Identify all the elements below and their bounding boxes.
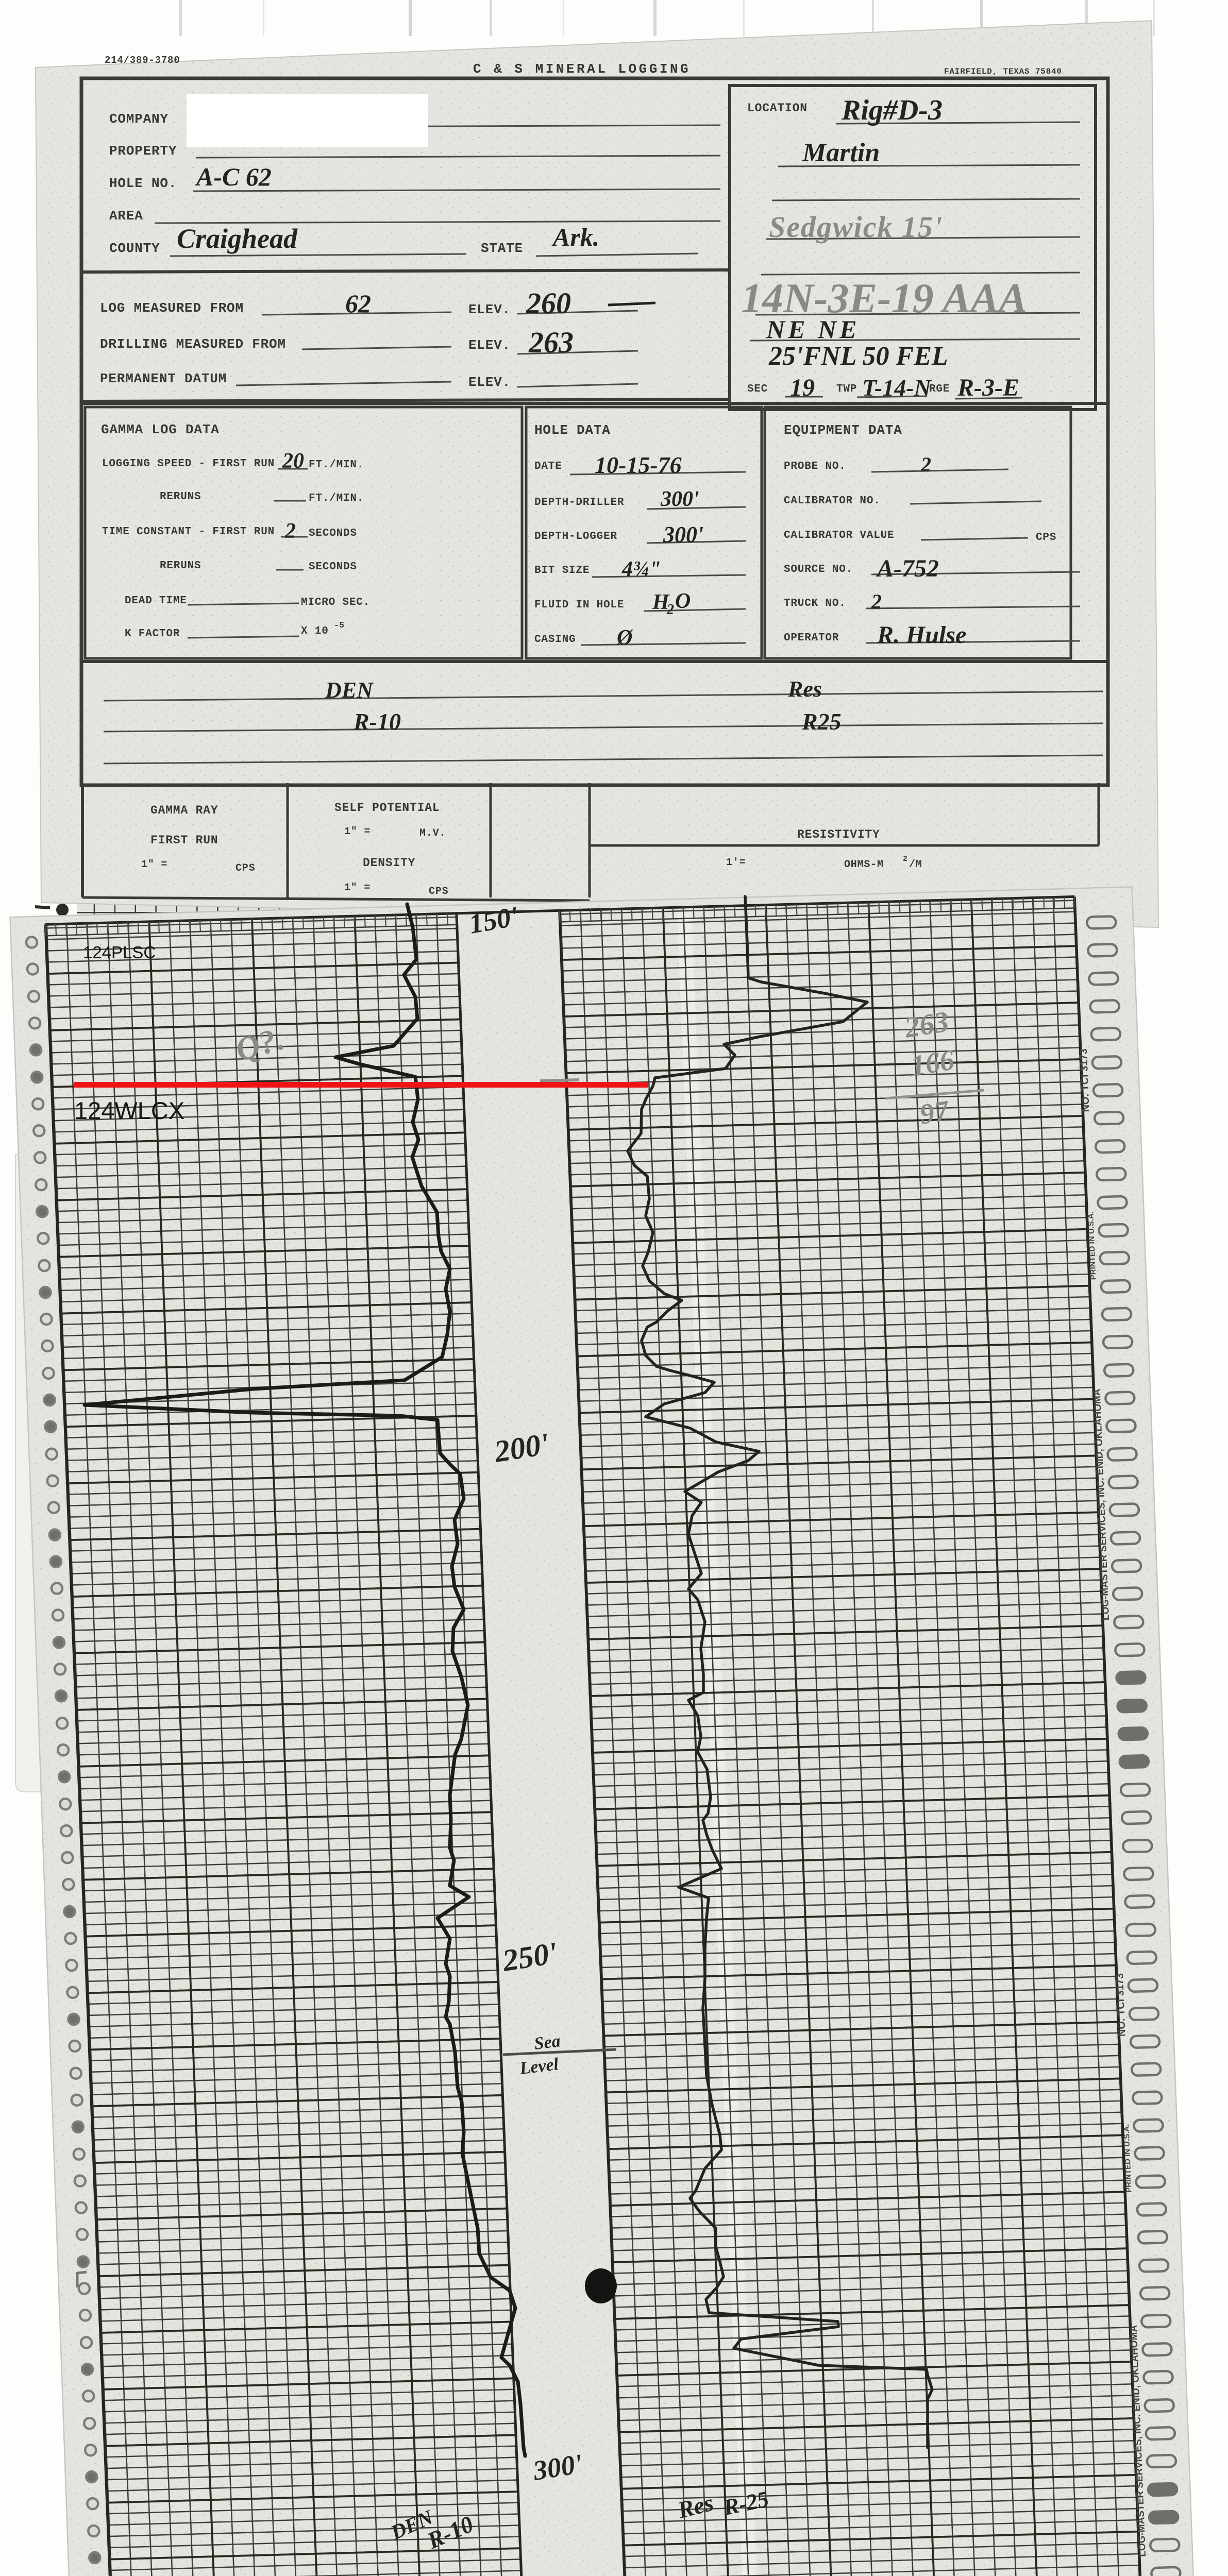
svg-text:2: 2: [920, 453, 931, 476]
svg-text:LOGGING SPEED - FIRST RUN: LOGGING SPEED - FIRST RUN: [102, 458, 275, 470]
svg-text:CPS: CPS: [1036, 532, 1056, 544]
svg-text:M.V.: M.V.: [419, 827, 446, 839]
svg-text:300': 300': [663, 522, 703, 547]
svg-text:1" =: 1" =: [141, 859, 167, 871]
svg-text:PROBE NO.: PROBE NO.: [784, 461, 846, 472]
svg-text:2: 2: [666, 602, 674, 618]
svg-text:FT./MIN.: FT./MIN.: [309, 493, 364, 504]
svg-text:ELEV.: ELEV.: [468, 375, 511, 390]
svg-text:FIRST RUN: FIRST RUN: [150, 834, 218, 847]
svg-text:C & S MINERAL LOGGING: C & S MINERAL LOGGING: [473, 61, 691, 77]
svg-text:RGE: RGE: [929, 383, 950, 395]
svg-text:CALIBRATOR VALUE: CALIBRATOR VALUE: [784, 530, 894, 541]
svg-text:2: 2: [284, 519, 296, 543]
svg-text:DRILLING MEASURED FROM: DRILLING MEASURED FROM: [100, 336, 286, 352]
svg-text:62: 62: [345, 289, 371, 318]
svg-text:EQUIPMENT DATA: EQUIPMENT DATA: [784, 422, 902, 438]
svg-text:STATE: STATE: [481, 241, 523, 256]
svg-text:A-752: A-752: [876, 555, 939, 582]
svg-text:CALIBRATOR NO.: CALIBRATOR NO.: [784, 495, 881, 507]
svg-text:263: 263: [528, 326, 574, 359]
svg-text:DEN: DEN: [325, 677, 374, 703]
svg-text:CASING: CASING: [534, 634, 576, 646]
svg-text:1'=: 1'=: [726, 857, 746, 869]
svg-text:DENSITY: DENSITY: [363, 856, 415, 870]
svg-text:260: 260: [526, 286, 571, 320]
svg-text:GAMMA RAY: GAMMA RAY: [150, 804, 218, 817]
svg-text:TWP: TWP: [836, 383, 857, 395]
svg-text:OPERATOR: OPERATOR: [784, 632, 839, 644]
svg-text:TRUCK NO.: TRUCK NO.: [784, 598, 846, 609]
svg-text:25'FNL 50 FEL: 25'FNL 50 FEL: [768, 342, 948, 371]
svg-text:DEAD TIME: DEAD TIME: [125, 595, 187, 607]
svg-text:OHMS-M: OHMS-M: [844, 859, 884, 871]
svg-text:RESISTIVITY: RESISTIVITY: [797, 828, 880, 841]
svg-text:COMPANY: COMPANY: [109, 111, 169, 127]
svg-text:Craighead: Craighead: [177, 223, 298, 254]
svg-text:263: 263: [902, 1005, 951, 1044]
svg-text:R25: R25: [801, 708, 842, 735]
svg-text:Ark.: Ark.: [551, 223, 599, 251]
svg-text:K FACTOR: K FACTOR: [125, 628, 180, 640]
svg-text:Sedgwick 15': Sedgwick 15': [769, 210, 943, 244]
svg-text:FT./MIN.: FT./MIN.: [309, 459, 364, 471]
svg-text:1" =: 1" =: [344, 826, 371, 838]
svg-text:TIME CONSTANT - FIRST RUN: TIME CONSTANT - FIRST RUN: [102, 526, 275, 538]
svg-text:RERUNS: RERUNS: [160, 560, 201, 572]
svg-text:Rig#D-3: Rig#D-3: [841, 94, 943, 126]
svg-text:CPS: CPS: [429, 886, 448, 897]
svg-text:4¾": 4¾": [621, 557, 661, 581]
svg-text:SOURCE NO.: SOURCE NO.: [784, 564, 853, 575]
svg-text:Martin: Martin: [802, 138, 880, 167]
svg-text:CPS: CPS: [235, 862, 255, 874]
svg-text:FLUID IN HOLE: FLUID IN HOLE: [534, 599, 624, 611]
svg-text:SECONDS: SECONDS: [309, 528, 357, 539]
svg-text:X 10: X 10: [301, 625, 329, 637]
svg-text:214/389-3780: 214/389-3780: [105, 55, 180, 66]
svg-text:124PLSC: 124PLSC: [83, 943, 156, 962]
svg-text:SECONDS: SECONDS: [309, 561, 357, 573]
svg-text:O: O: [675, 589, 691, 613]
svg-text:RERUNS: RERUNS: [160, 491, 201, 503]
svg-text:DATE: DATE: [534, 461, 562, 472]
svg-text:2: 2: [903, 855, 908, 863]
svg-text:ELEV.: ELEV.: [468, 337, 511, 353]
svg-text:R. Hulse: R. Hulse: [877, 621, 966, 649]
svg-text:300': 300': [660, 487, 699, 511]
svg-text:HOLE DATA: HOLE DATA: [534, 422, 611, 438]
svg-text:SEC: SEC: [747, 383, 768, 395]
svg-text:/M: /M: [909, 859, 922, 871]
svg-text:A-C 62: A-C 62: [195, 162, 272, 191]
svg-text:1" =: 1" =: [344, 882, 371, 894]
svg-text:R-10: R-10: [353, 708, 401, 735]
svg-text:BIT SIZE: BIT SIZE: [534, 565, 590, 577]
svg-text:-5: -5: [334, 621, 345, 630]
svg-text:COUNTY: COUNTY: [109, 241, 160, 256]
svg-text:PERMANENT DATUM: PERMANENT DATUM: [100, 371, 227, 386]
svg-text:NE NE: NE NE: [766, 315, 860, 344]
svg-text:ELEV.: ELEV.: [468, 302, 511, 317]
svg-text:20: 20: [282, 449, 304, 473]
svg-text:PROPERTY: PROPERTY: [109, 143, 177, 159]
svg-text:124WLCX: 124WLCX: [74, 1097, 184, 1124]
svg-text:FAIRFIELD, TEXAS 75840: FAIRFIELD, TEXAS 75840: [944, 67, 1062, 76]
svg-text:GAMMA LOG DATA: GAMMA LOG DATA: [101, 422, 220, 437]
svg-text:HOLE NO.: HOLE NO.: [109, 176, 177, 191]
svg-text:LOG MEASURED FROM: LOG MEASURED FROM: [100, 300, 244, 316]
svg-text:166: 166: [909, 1044, 956, 1082]
svg-text:Res: Res: [787, 676, 822, 702]
svg-text:2: 2: [871, 590, 882, 613]
svg-text:AREA: AREA: [109, 208, 143, 224]
svg-text:MICRO SEC.: MICRO SEC.: [301, 597, 370, 608]
svg-text:DEPTH-LOGGER: DEPTH-LOGGER: [534, 531, 617, 543]
svg-text:DEPTH-DRILLER: DEPTH-DRILLER: [534, 497, 624, 509]
svg-text:SELF POTENTIAL: SELF POTENTIAL: [334, 801, 440, 815]
svg-text:Sea: Sea: [533, 2031, 561, 2054]
svg-text:LOCATION: LOCATION: [747, 101, 808, 115]
svg-text:Ø: Ø: [616, 626, 633, 650]
svg-text:10-15-76: 10-15-76: [595, 452, 682, 478]
